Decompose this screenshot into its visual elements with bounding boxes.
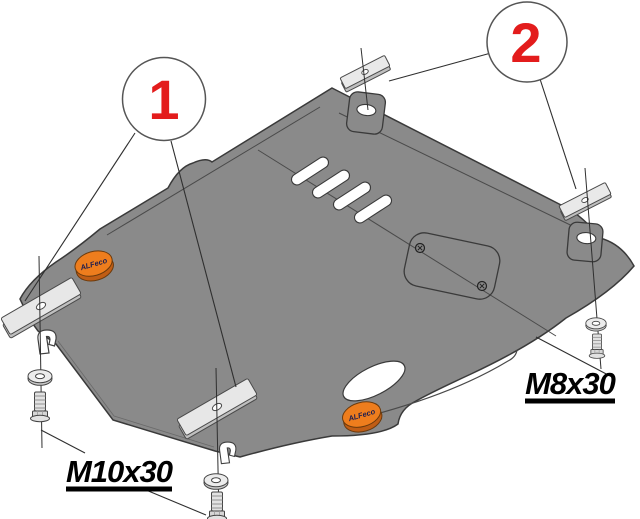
bolt-icon-m8-right <box>589 334 605 358</box>
edge-hook-slot <box>220 442 236 464</box>
bolt-spec-m8-text: M8x30 <box>525 366 616 401</box>
hatch-screw-icon <box>478 282 487 291</box>
bolt-spec-m10-text: M10x30 <box>66 454 173 489</box>
mounting-tab-top <box>346 91 387 135</box>
leader-m10-to-bottom-bolt <box>146 490 206 515</box>
washer-icon-bottom <box>204 474 228 490</box>
callout-2-number: 2 <box>510 11 541 74</box>
leader-m10-to-left-bolt <box>41 430 85 453</box>
callout-1: 1 <box>123 58 206 141</box>
bolt-icon-m10-left <box>31 392 50 422</box>
bolt-icon-m10-bottom <box>208 492 227 519</box>
callout-1-number: 1 <box>148 68 179 131</box>
leader-callout2-to-right-strip <box>540 79 576 189</box>
label-m10x30: M10x30 <box>66 454 173 489</box>
washer-icon-left <box>28 370 52 386</box>
label-m8x30: M8x30 <box>525 366 616 401</box>
callout-2: 2 <box>487 2 567 82</box>
diagram-canvas: ALFeco ALFeco <box>0 0 640 519</box>
mounting-tab-right <box>566 222 603 263</box>
hatch-screw-icon <box>416 244 425 253</box>
skid-plate: ALFeco ALFeco <box>20 88 634 464</box>
mounting-strip-right <box>559 182 612 220</box>
washer-icon-right <box>586 318 606 331</box>
leader-callout2-to-top-strip <box>389 53 491 81</box>
skid-plate-assembly-diagram: ALFeco ALFeco <box>0 0 640 519</box>
